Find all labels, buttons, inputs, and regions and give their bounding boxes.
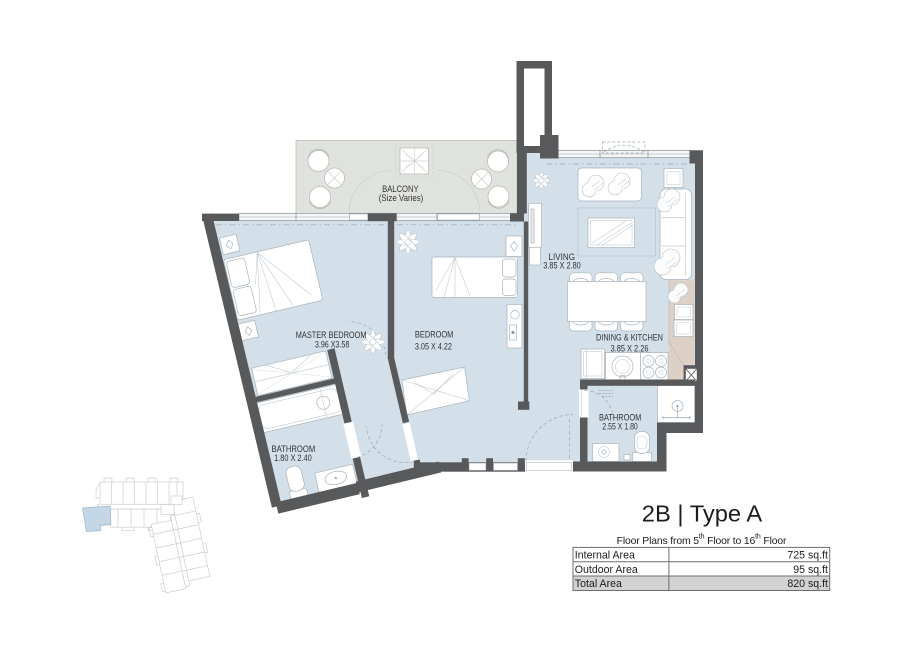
svg-text:725 sq.ft: 725 sq.ft — [787, 550, 828, 562]
svg-text:820 sq.ft: 820 sq.ft — [787, 578, 828, 590]
svg-text:3.96 X3.58: 3.96 X3.58 — [315, 339, 349, 349]
svg-text:2B | Type A: 2B | Type A — [642, 501, 763, 527]
svg-text:3.05 X 4.22: 3.05 X 4.22 — [415, 341, 452, 351]
svg-text:(Size Varies): (Size Varies) — [379, 193, 424, 203]
svg-text:BEDROOM: BEDROOM — [415, 330, 454, 340]
svg-text:Internal Area: Internal Area — [575, 550, 635, 562]
svg-text:3.85 X 2.80: 3.85 X 2.80 — [543, 261, 580, 271]
svg-text:Outdoor Area: Outdoor Area — [575, 564, 638, 576]
svg-text:2.55 X 1.80: 2.55 X 1.80 — [602, 421, 638, 431]
svg-text:1.80 X 2.40: 1.80 X 2.40 — [274, 453, 312, 463]
svg-text:DINING & KITCHEN: DINING & KITCHEN — [596, 332, 663, 342]
svg-text:Total Area: Total Area — [575, 578, 622, 590]
svg-text:3.85 X 2.26: 3.85 X 2.26 — [611, 343, 649, 353]
svg-text:95 sq.ft: 95 sq.ft — [793, 564, 828, 576]
